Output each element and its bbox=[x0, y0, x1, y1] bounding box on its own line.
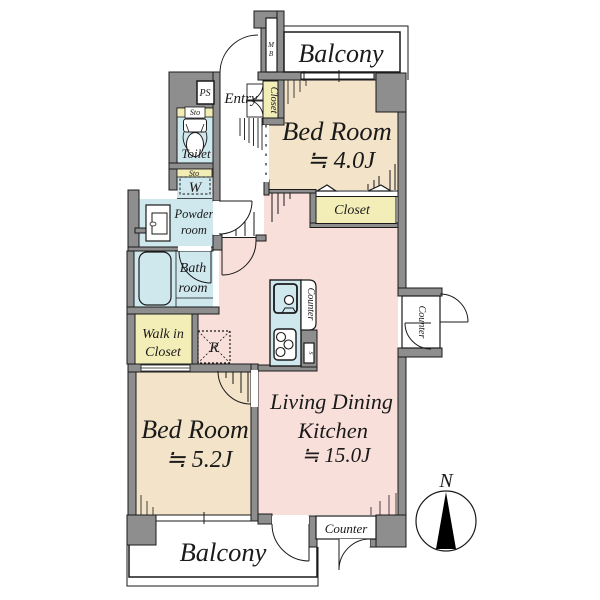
svg-text:Counter: Counter bbox=[416, 306, 427, 339]
svg-text:Bath: Bath bbox=[180, 261, 206, 276]
svg-text:Sto: Sto bbox=[190, 108, 200, 117]
svg-text:Balcony: Balcony bbox=[180, 537, 267, 567]
svg-text:Balcony: Balcony bbox=[298, 39, 384, 68]
svg-text:Closet: Closet bbox=[268, 87, 279, 115]
svg-text:M: M bbox=[267, 41, 275, 49]
svg-text:Counter: Counter bbox=[325, 521, 369, 536]
svg-text:Living Dining: Living Dining bbox=[269, 389, 393, 414]
svg-text:Entry: Entry bbox=[223, 91, 258, 107]
svg-text:Counter: Counter bbox=[305, 288, 316, 321]
svg-text:≒ 4.0J: ≒ 4.0J bbox=[307, 147, 376, 174]
svg-text:Powder: Powder bbox=[174, 207, 214, 221]
svg-text:W: W bbox=[189, 180, 203, 196]
svg-text:Toilet: Toilet bbox=[181, 146, 211, 161]
svg-text:≒ 15.0J: ≒ 15.0J bbox=[302, 443, 373, 467]
svg-text:S: S bbox=[307, 352, 313, 355]
svg-text:Closet: Closet bbox=[334, 203, 371, 218]
svg-text:R: R bbox=[208, 340, 218, 356]
svg-text:Bed Room: Bed Room bbox=[141, 415, 249, 444]
svg-text:Walk in: Walk in bbox=[142, 327, 184, 342]
svg-text:B: B bbox=[269, 50, 274, 58]
svg-text:Kitchen: Kitchen bbox=[297, 418, 368, 443]
svg-text:Closet: Closet bbox=[145, 345, 182, 360]
svg-text:N: N bbox=[438, 470, 454, 492]
svg-text:room: room bbox=[181, 223, 207, 237]
svg-text:Bed Room: Bed Room bbox=[282, 116, 392, 146]
svg-text:PS: PS bbox=[198, 88, 210, 99]
svg-text:room: room bbox=[178, 281, 207, 296]
svg-text:≒ 5.2J: ≒ 5.2J bbox=[166, 447, 234, 473]
